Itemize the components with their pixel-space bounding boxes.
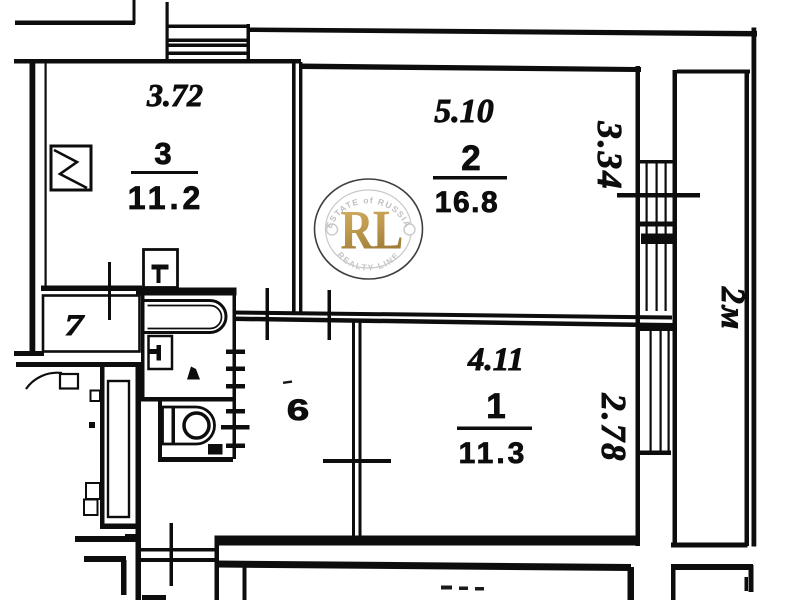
svg-text:2м: 2м	[714, 286, 751, 331]
svg-text:6: 6	[287, 393, 310, 427]
svg-text:3: 3	[154, 136, 171, 171]
svg-text:11.3: 11.3	[459, 437, 528, 470]
svg-text:5.10: 5.10	[434, 93, 494, 130]
svg-text:1: 1	[486, 387, 505, 426]
svg-text:4.11: 4.11	[467, 342, 524, 378]
svg-text:2: 2	[461, 139, 480, 178]
svg-text:RL: RL	[340, 199, 402, 261]
svg-text:2.78: 2.78	[594, 392, 633, 462]
svg-text:7: 7	[65, 309, 86, 342]
svg-text:16.8: 16.8	[435, 186, 499, 219]
svg-text:3.72: 3.72	[146, 77, 203, 113]
svg-text:11.2: 11.2	[128, 180, 205, 216]
svg-text:3.34: 3.34	[590, 120, 629, 190]
